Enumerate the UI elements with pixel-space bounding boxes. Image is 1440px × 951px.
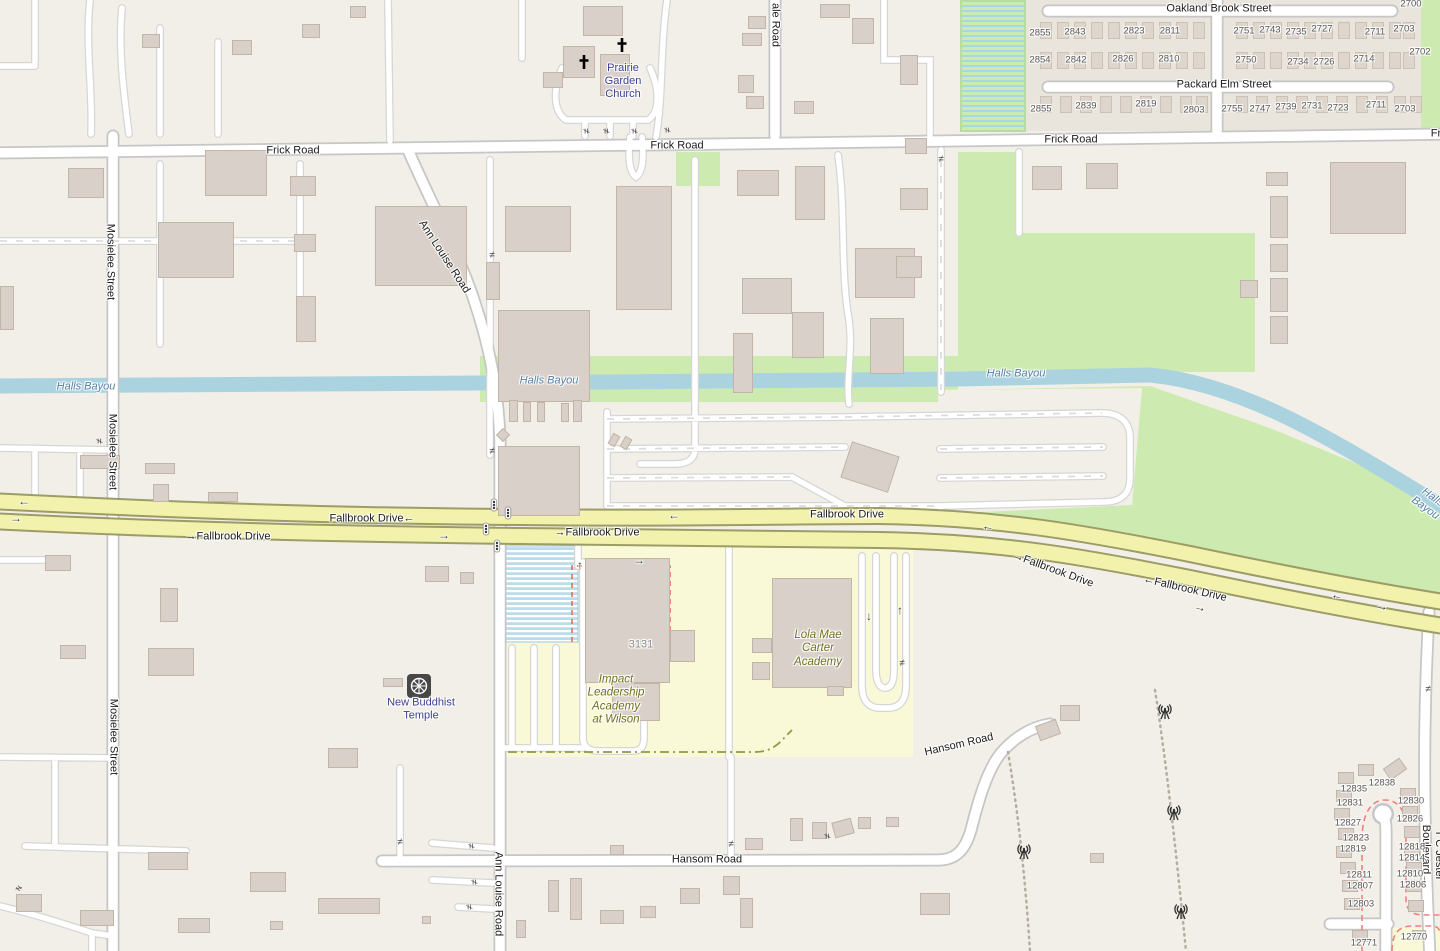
radio-mast-icon [1018,845,1030,859]
map-canvas[interactable]: Oakland Brook StreetPackard Elm StreetFr… [0,0,1440,951]
radio-mast-icon [1159,705,1171,719]
radio-mast-icon [1168,806,1180,820]
church-cross-icon [580,55,589,69]
map-icons [0,0,1440,951]
radio-mast-icon [1175,905,1187,919]
traffic-signal-icon [505,507,511,519]
traffic-signal-icon [494,540,500,552]
traffic-signal-icon [491,499,497,511]
church-cross-icon [618,38,627,52]
traffic-signal-icon [483,523,489,535]
dharma-wheel-icon [407,674,431,698]
